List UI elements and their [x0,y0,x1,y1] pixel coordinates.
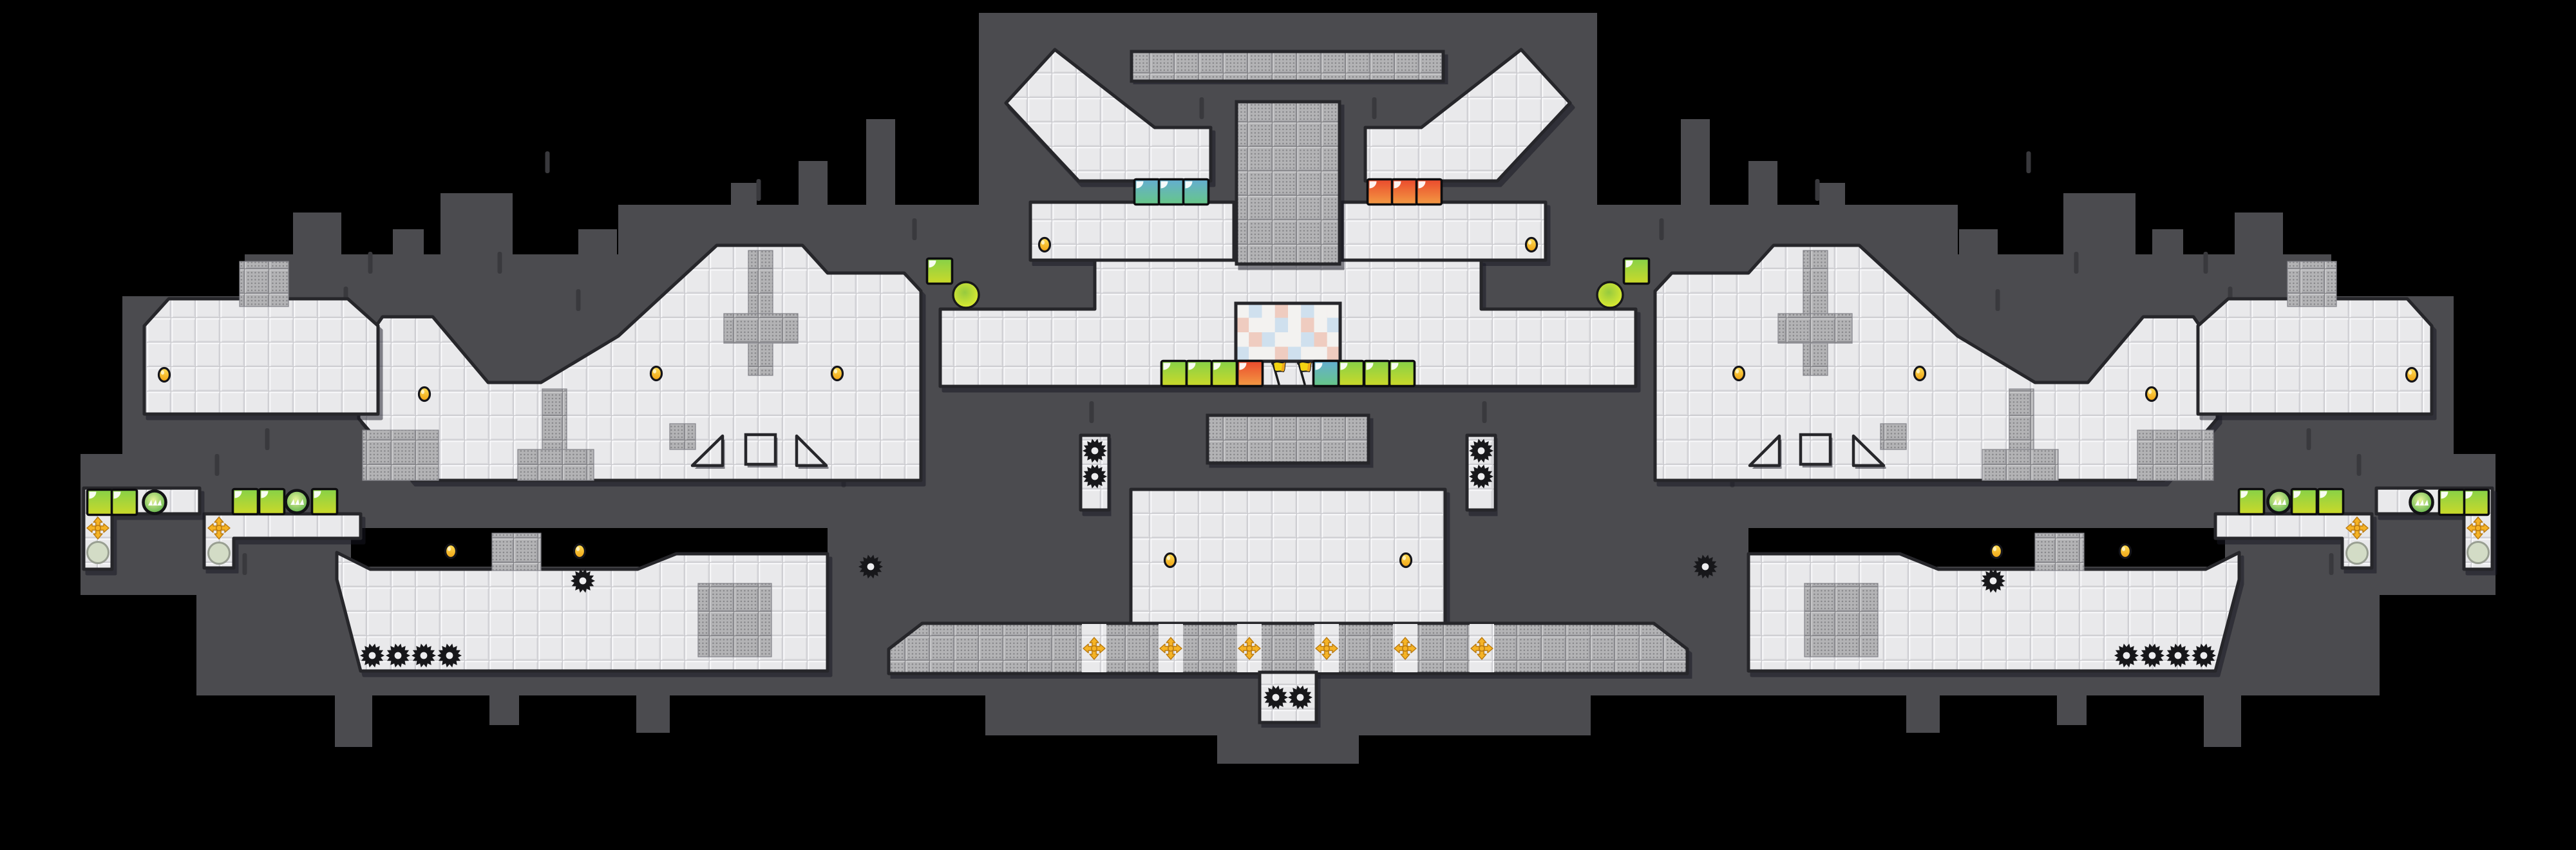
silhouette-block [80,569,200,595]
spike-orb-item [2410,491,2433,514]
plate-tiles [492,533,541,571]
checker-cell [1288,318,1301,333]
coin [1991,545,2002,558]
plate-tiles [748,250,773,375]
item-box-green [2464,490,2489,515]
wall-notch [215,454,220,476]
checker-cell [1314,347,1327,362]
checker-cell [1275,303,1288,318]
silhouette-block [393,229,424,259]
plate-tiles [518,449,594,480]
checker-cell [1288,332,1301,347]
item-box-green [1187,361,1212,386]
plate-tiles [724,314,798,343]
wall-notch [1660,218,1664,240]
plate-block [1132,52,1443,81]
plate-tiles [363,430,439,480]
tile-platform [1342,202,1546,260]
coin [574,545,585,558]
silhouette-block [1959,229,1998,259]
silhouette-block [2152,229,2183,259]
game-map-canvas [0,0,2576,850]
item-box-green [1212,361,1237,386]
level-map [0,0,2576,850]
silhouette-block [731,183,757,209]
coin [159,368,170,382]
wall-notch [2027,151,2031,173]
item-box-green [88,490,113,515]
wall-notch [2074,252,2079,274]
checker-cell [1301,347,1314,362]
silhouette-block [2235,212,2283,258]
silhouette-block [799,161,828,209]
silhouette-block [2057,693,2087,725]
item-box-green [233,489,258,515]
bubble-ball-item [953,282,979,308]
silhouette-block [866,119,895,209]
checker-cell [1327,347,1340,362]
plate-tiles [1880,424,1906,449]
coin [2146,388,2157,401]
tile-platform [1131,489,1445,631]
silhouette-block [1906,693,1940,733]
silhouette-block [335,693,372,747]
checker-cell [1314,318,1327,333]
bubble-ball-item [1597,282,1623,308]
plate-tiles [2009,389,2034,458]
disc-item [88,542,109,563]
spike-orb-item [286,491,308,513]
checker-cell [1327,318,1340,333]
plate-tiles [1804,583,1878,657]
item-box-red [1417,180,1442,205]
checker-cell [1301,318,1314,333]
wall-notch [757,179,761,201]
coin [651,367,662,381]
coin [2407,368,2418,382]
checker-cell [1249,303,1262,318]
item-box-blue [1314,361,1339,386]
silhouette-block [636,693,670,733]
item-box-green [1162,361,1187,386]
floating-square [746,435,775,464]
plate-tiles [2035,533,2084,571]
item-box-green [1339,361,1364,386]
item-box-green [112,490,137,515]
plate-block [1207,415,1368,463]
checker-cell [1327,332,1340,347]
coin [1165,554,1176,567]
item-box-red [1392,180,1417,205]
coin [419,388,430,401]
item-box-green [1365,361,1390,386]
item-box-red [1238,361,1263,386]
tile-platform [144,299,378,414]
checker-cell [1249,318,1262,333]
plate-tiles [698,583,772,657]
plate-tiles [240,261,289,307]
silhouette-block [1748,161,1777,209]
coin [446,545,457,558]
checker-cell [1301,332,1314,347]
silhouette-block [1681,119,1710,209]
silhouette-block [2204,693,2241,747]
checker-cell [1288,303,1301,318]
checker-cell [1236,318,1249,333]
silhouette-block [1819,183,1845,209]
wall-notch [2329,553,2334,575]
checker-cell [1249,347,1262,362]
wall-notch [1200,97,1204,119]
checker-cell [1314,332,1327,347]
checker-cell [1275,318,1288,333]
coin [1734,367,1745,381]
checker-cell [1262,303,1275,318]
disc-item [2347,543,2368,564]
wall-notch [2357,454,2362,476]
item-box-blue [1159,180,1184,205]
item-box-green [1624,259,1649,284]
plate-tiles [1803,250,1828,375]
wall-notch [498,252,502,274]
spike-orb-item [2268,491,2291,513]
plate-tiles [1982,449,2058,480]
checker-cell [1275,332,1288,347]
tile-platform [2198,299,2432,414]
wall-notch [2307,428,2311,450]
item-box-blue [1135,180,1160,205]
silhouette-block [2376,569,2495,595]
wall-notch [1815,179,1820,201]
checker-cell [1288,347,1301,362]
checker-cell [1314,303,1327,318]
wall-notch [1372,97,1377,119]
silhouette-block [489,693,519,725]
bottom-walkway [889,623,1687,674]
coin [832,367,843,381]
item-box-green [1390,361,1415,386]
wall-notch [1090,401,1094,423]
checker-cell [1327,303,1340,318]
silhouette-block [2063,193,2136,258]
spike-orb-item [144,491,166,514]
item-box-green [927,259,952,284]
tile-platform [1030,202,1234,260]
disc-item [209,543,230,564]
wall-notch [576,289,581,311]
wall-notch [1482,401,1487,423]
plate-tiles [2287,261,2336,307]
silhouette-block [440,193,513,258]
silhouette-block [578,229,617,259]
wall-notch [265,428,270,450]
checker-cell [1275,347,1288,362]
checker-cell [1262,332,1275,347]
checker-cell [1262,347,1275,362]
silhouette-block [1217,735,1359,764]
silhouette-block [293,212,341,258]
wall-notch [1996,289,2000,311]
coin [1039,238,1050,252]
checker-cell [1236,332,1249,347]
plate-tiles [1778,314,1852,343]
coin [1401,554,1412,567]
plate-block [1236,102,1340,264]
item-box-green [312,489,337,515]
wall-notch [368,252,373,274]
coin [2120,545,2131,558]
item-box-green [260,489,285,515]
floating-square [1801,435,1830,464]
wall-notch [243,553,247,575]
item-box-green [2439,490,2465,515]
item-box-blue [1184,180,1209,205]
coin [1915,367,1926,381]
item-box-green [2239,489,2264,515]
coin [1526,238,1537,252]
checker-cell [1249,332,1262,347]
wall-notch [545,151,550,173]
item-box-green [2292,489,2317,515]
checker-cell [1236,347,1249,362]
wall-notch [913,218,917,240]
item-box-green [2318,489,2344,515]
plate-tiles [2137,430,2213,480]
item-box-red [1368,180,1393,205]
checker-cell [1301,303,1314,318]
plate-tiles [670,424,696,449]
plate-tiles [542,389,567,458]
disc-item [2468,542,2489,563]
checker-cell [1236,303,1249,318]
wall-notch [2204,252,2208,274]
checker-cell [1262,318,1275,333]
